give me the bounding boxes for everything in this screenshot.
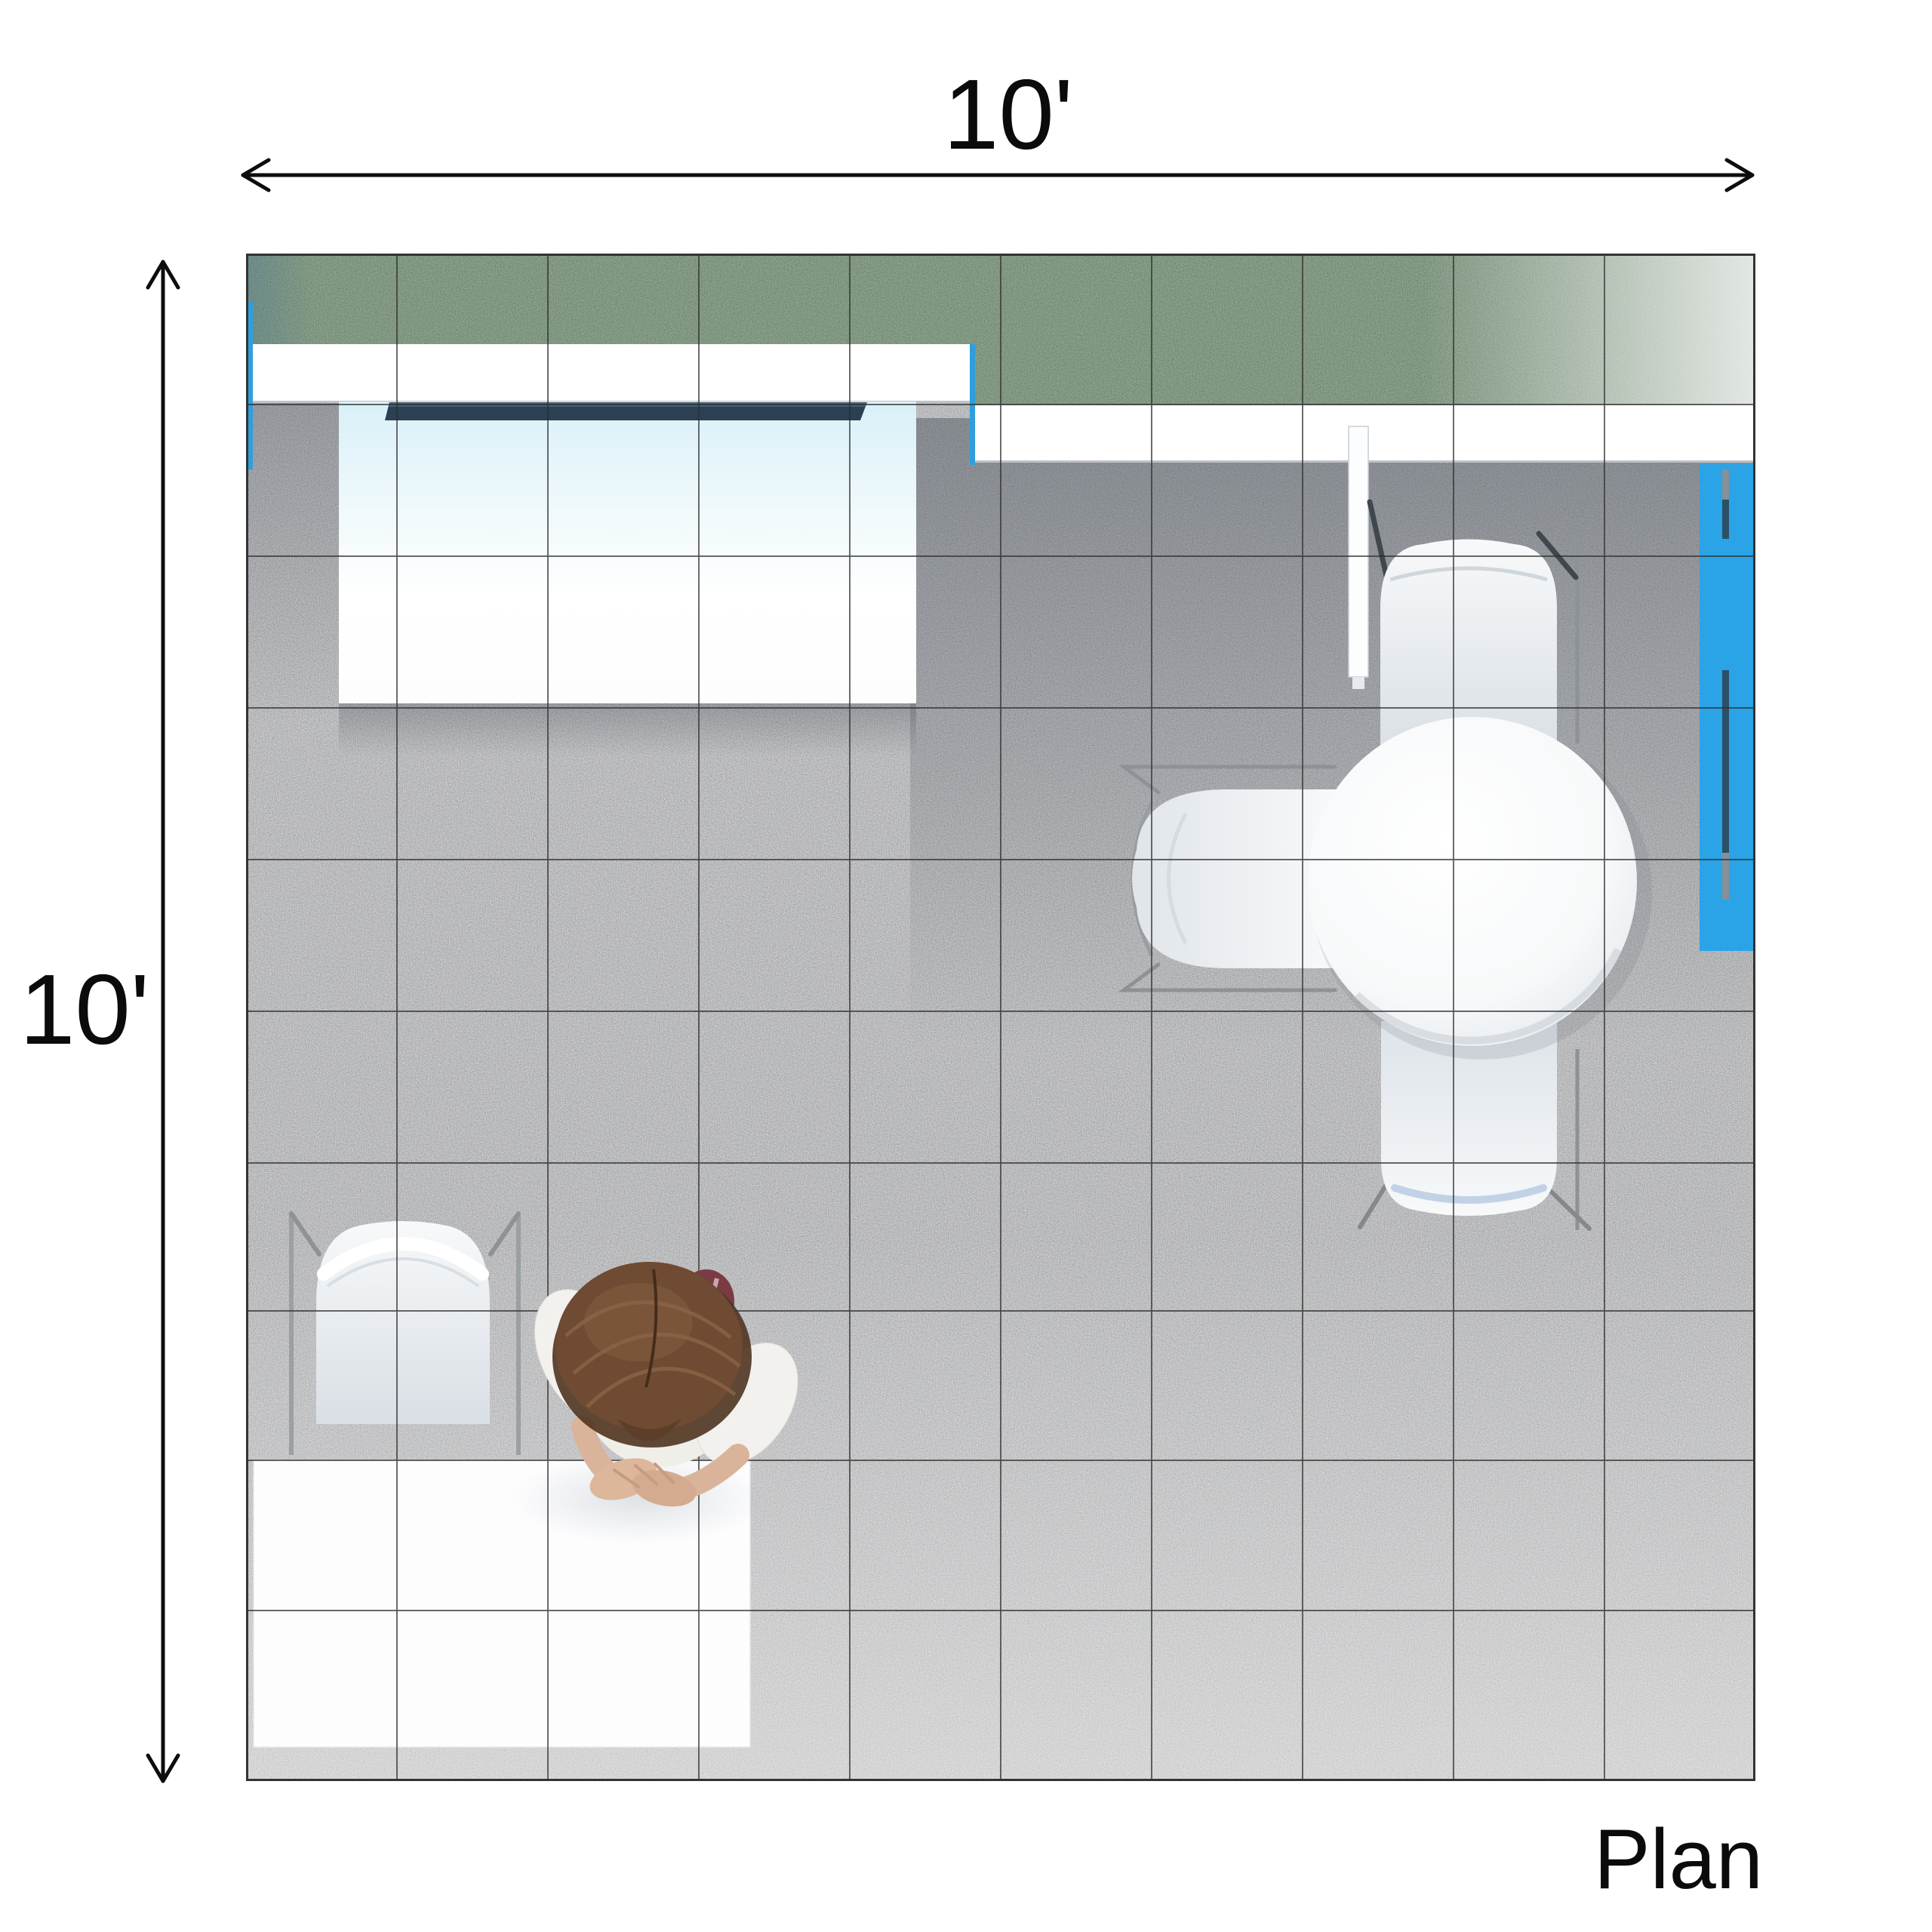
wall-divider-post-foot [1352,677,1364,689]
cabinet-handle-top-gray [1722,469,1729,500]
reception-counter [339,401,916,703]
counter-drop-shadow [339,703,916,756]
overhead-canopy-left [246,344,973,403]
accent-edge-left [248,302,253,469]
wall-divider-post [1349,426,1368,677]
booth-plan [246,254,1755,1781]
cabinet-handle-top-navy [1722,500,1729,539]
carpet-fade-right [1423,254,1755,405]
chair-seat [316,1221,490,1424]
canopy-shadow-left-sliver [246,401,339,726]
cabinet-handle-long-navy [1722,670,1729,853]
person-hair-crown [584,1283,693,1361]
carpet-tint-left [246,254,314,344]
plan-sheet: 10' 10' Plan [0,0,1932,1932]
